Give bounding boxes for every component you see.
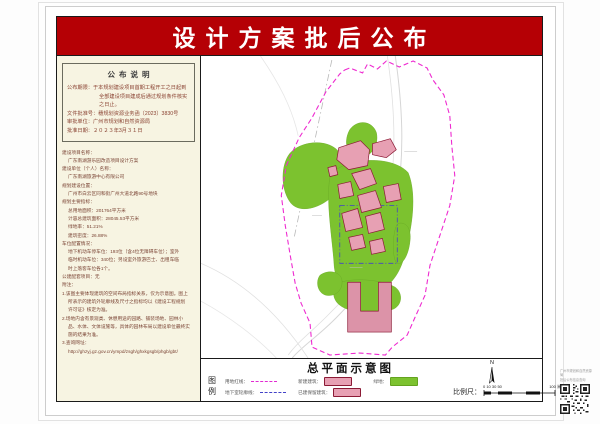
detail-line: 公建配套项目：无 xyxy=(62,273,195,281)
notice-row-label: 公布期限： xyxy=(67,85,93,91)
legend-heading: 图例 xyxy=(208,375,218,397)
detail-line: 广州市白云区同和街广州大道北路90号地块 xyxy=(62,190,195,198)
map-footer: 总平面示意图 图例 用地红线： 地下室轮廓线： xyxy=(201,358,542,401)
detail-line: 许可证》核定为准。 xyxy=(62,306,195,314)
notice-row: 批准日期：２０２３年3月３１日 xyxy=(67,127,190,136)
detail-line: 3.查询网址： xyxy=(62,339,195,347)
notice-row: 公布期限：于本规划建设项目首期工程开工之日起到全部建设项目建成后通过规划条件核实… xyxy=(67,84,190,110)
detail-line: 施的结果为准。 xyxy=(62,331,195,339)
detail-line: 建设单位（个人）名称： xyxy=(62,165,195,173)
legend-item-swatch xyxy=(324,377,352,386)
detail-line: 品、水体、文体设施等，具体的园林布局以建设单位最终实 xyxy=(62,323,195,331)
detail-line: 广东南湖游乐园改造项目设计方案 xyxy=(62,157,195,165)
detail-line: http://ghzyj.gz.gov.cn/ympd/zsgh/ghxkgsg… xyxy=(62,348,195,356)
project-details: 建设项目名称： 广东南湖游乐园改造项目设计方案 建设单位（个人）名称： 广东南湖… xyxy=(57,146,200,356)
notice-row-label: 文件批准号： xyxy=(67,111,98,117)
detail-line: 建设项目名称： xyxy=(62,149,195,157)
legend: 用地红线： 地下室轮廓线： 新建建筑： xyxy=(225,376,418,398)
notice-row-value: ２０２３年3月３１日 xyxy=(93,128,143,134)
legend-item-swatch xyxy=(390,377,418,386)
detail-line: 规划主要指标： xyxy=(62,198,195,206)
poster-outer-frame: 设计方案批后公布 公布说明 公布期限：于本规划建设项目首期工程开工之日起到全部建… xyxy=(38,2,564,421)
detail-line: 所表示的建筑外轮廓线及尺寸之指标均以《建设工程规划 xyxy=(62,298,195,306)
site-plan-title: 总平面示意图 xyxy=(307,360,394,376)
qr-code-icon xyxy=(560,384,590,414)
detail-line: 1.该图主要体现建筑的空间布局指标关系，仅为示意图。图上 xyxy=(62,290,195,298)
legend-item: 新建建筑： xyxy=(298,377,361,386)
legend-item-label: 用地红线： xyxy=(225,379,248,385)
info-panel: 公布说明 公布期限：于本规划建设项目首期工程开工之日起到全部建设项目建成后通过规… xyxy=(57,56,201,401)
legend-item-swatch xyxy=(333,388,361,397)
detail-line: 临时机动车位：340位；另设室外旅游巴士、出租车临 xyxy=(62,256,195,264)
scale-bar: 比例尺： 0 10 30 50 100 米 xyxy=(453,384,561,397)
notice-row: 文件批准号：穗规划资源业务函〔2023〕3830号 xyxy=(67,110,190,119)
legend-item: 绿地： xyxy=(373,377,418,386)
detail-line: 绿地率：51.21% xyxy=(62,223,195,231)
legend-item-swatch xyxy=(260,392,286,393)
detail-line: 建筑密度：26.88% xyxy=(62,232,195,240)
detail-line: 规划建设位置： xyxy=(62,182,195,190)
notice-box: 公布说明 公布期限：于本规划建设项目首期工程开工之日起到全部建设项目建成后通过规… xyxy=(62,63,195,142)
detail-line: 广东南湖旅游中心有限公司 xyxy=(62,173,195,181)
north-arrow-icon xyxy=(484,366,500,386)
poster-content-frame: 设计方案批后公布 公布说明 公布期限：于本规划建设项目首期工程开工之日起到全部建… xyxy=(56,16,543,402)
legend-item: 地下室轮廓线： xyxy=(225,390,286,396)
qr-caption-line1: 广州市规划和自然资源局 xyxy=(560,369,594,377)
page-title: 设计方案批后公布 xyxy=(57,17,542,56)
notice-rows: 公布期限：于本规划建设项目首期工程开工之日起到全部建设项目建成后通过规划条件核实… xyxy=(67,84,190,136)
notice-title: 公布说明 xyxy=(67,69,190,80)
legend-item: 已建保留建筑： xyxy=(298,388,361,397)
poster-sheet: 设计方案批后公布 公布说明 公布期限：于本规划建设项目首期工程开工之日起到全部建… xyxy=(45,6,556,416)
scale-label: 比例尺： xyxy=(453,387,481,397)
site-plan-panel: 总平面示意图 图例 用地红线： 地下室轮廓线： xyxy=(201,56,542,401)
legend-item: 用地红线： xyxy=(225,379,286,385)
notice-row-label: 审批单位： xyxy=(67,119,93,125)
detail-line: 车位配置情况： xyxy=(62,240,195,248)
site-plan-svg xyxy=(201,56,542,358)
detail-line: 计容总建筑面积：28045.53平方米 xyxy=(62,215,195,223)
detail-line: 地下机动车停车位：193位（含4位无障碍车位）；室外 xyxy=(62,248,195,256)
notice-row: 审批单位：广州市规划和自然资源局 xyxy=(67,118,190,127)
site-plan-map xyxy=(201,56,542,358)
detail-line: 总用地面积：201764平方米 xyxy=(62,207,195,215)
notice-row-value: 于本规划建设项目首期工程开工之日起到全部建设项目建成后通过规划条件核实之日止。 xyxy=(93,85,187,108)
detail-line: 时上落客车位各1个。 xyxy=(62,265,195,273)
legend-item-label: 已建保留建筑： xyxy=(298,390,330,396)
legend-item-label: 新建建筑： xyxy=(298,379,321,385)
scale-bar-icon xyxy=(483,389,561,397)
legend-item-label: 地下室轮廓线： xyxy=(225,390,257,396)
main-row: 公布说明 公布期限：于本规划建设项目首期工程开工之日起到全部建设项目建成后通过规… xyxy=(57,56,542,401)
notice-row-value: 穗规划资源业务函〔2023〕3830号 xyxy=(98,111,178,117)
scale-graphic: 0 10 30 50 100 米 xyxy=(483,384,561,397)
legend-item-swatch xyxy=(251,381,277,382)
detail-line: 2.场地内含有景观类、休憩用途的园路、铺装场地、园林小 xyxy=(62,315,195,323)
qr-block: 广州市规划和自然资源局 批后公布信息查询 xyxy=(560,369,594,419)
legend-item-label: 绿地： xyxy=(373,379,387,385)
notice-row-label: 批准日期： xyxy=(67,128,93,134)
qr-caption-line2: 批后公布信息查询 xyxy=(560,378,594,382)
notice-row-value: 广州市规划和自然资源局 xyxy=(93,119,150,125)
detail-line: 附注： xyxy=(62,281,195,289)
